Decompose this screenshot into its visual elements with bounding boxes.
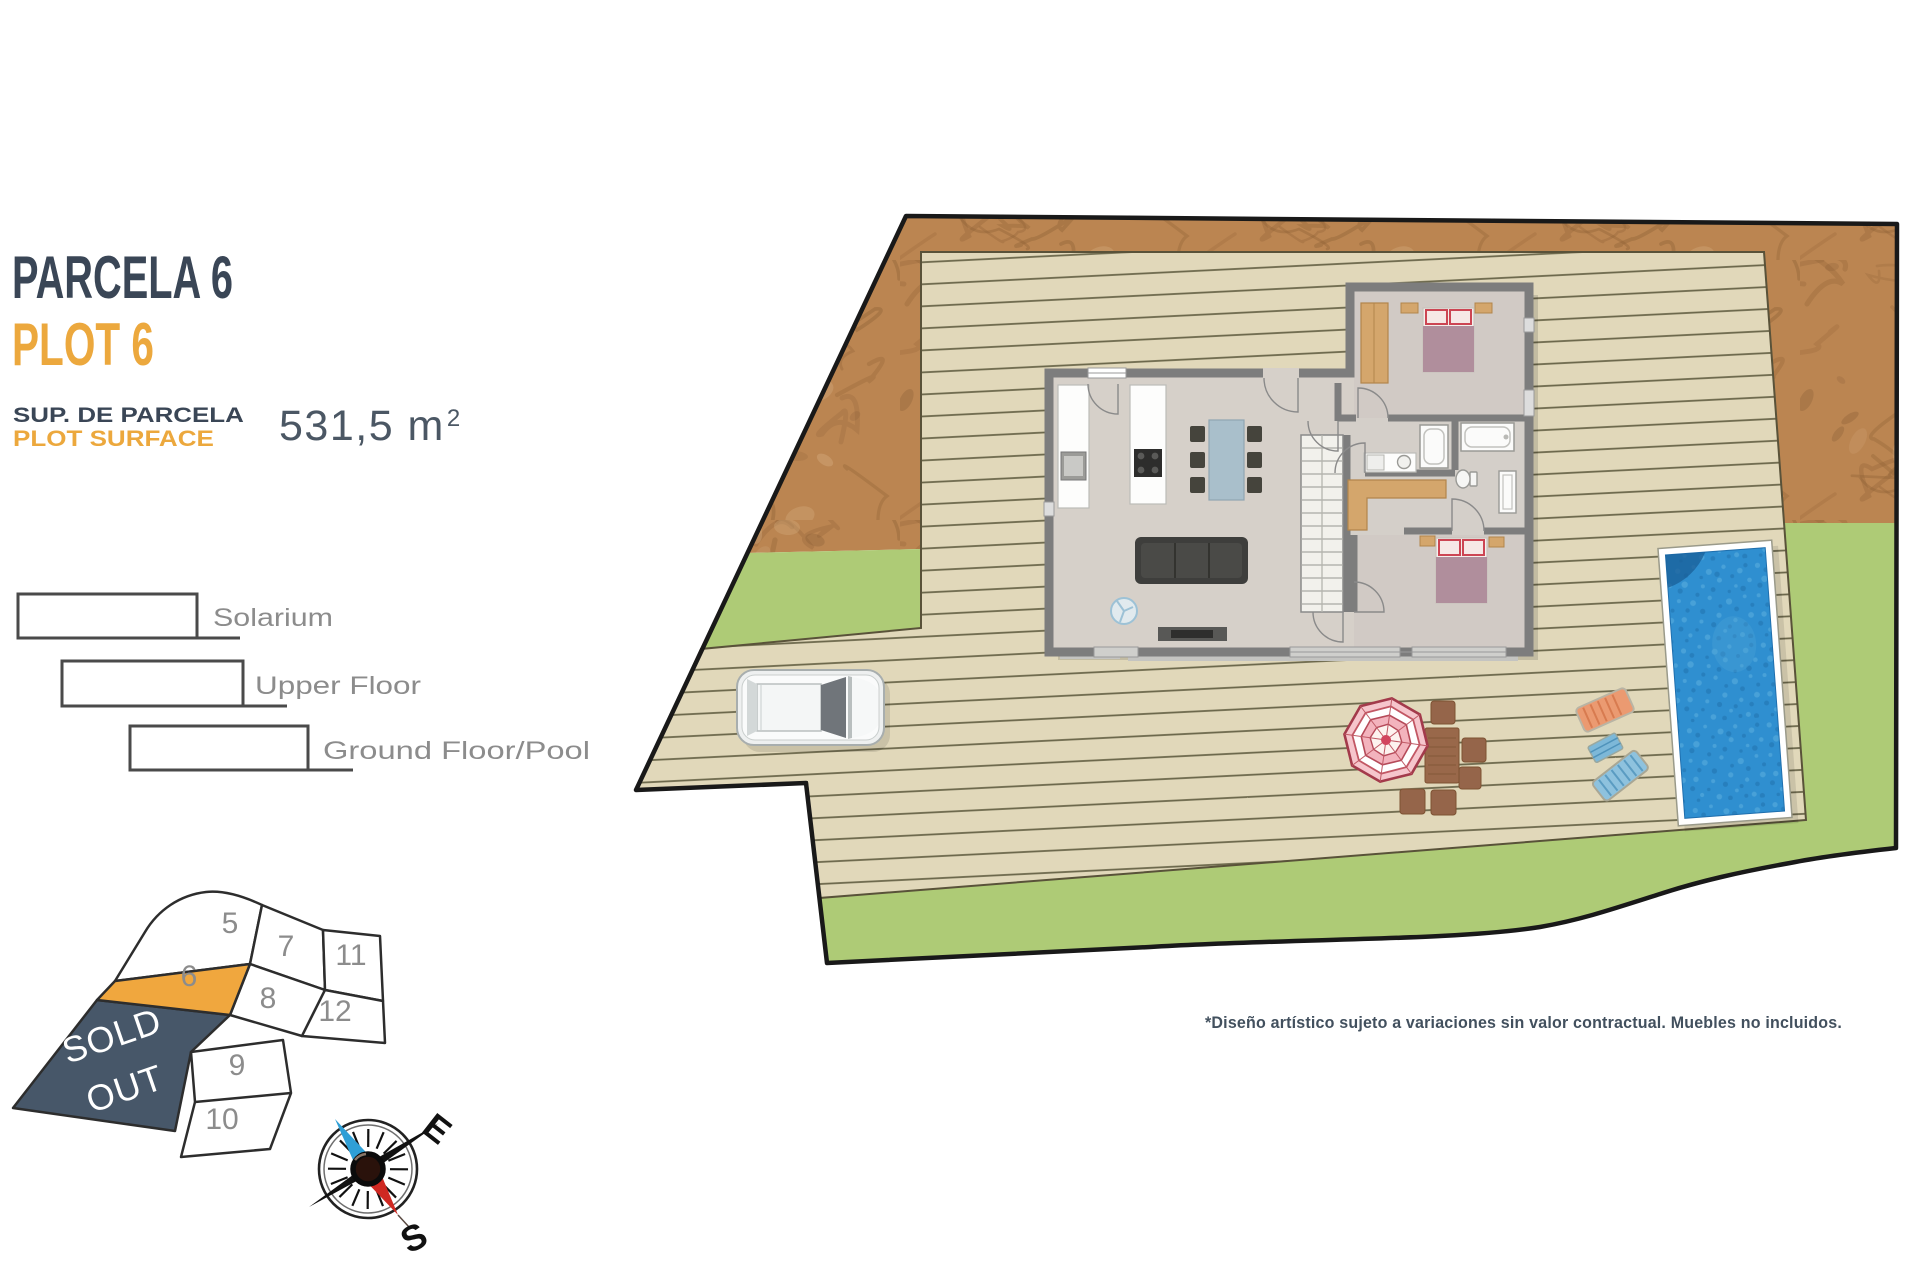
svg-text:531,5 m2: 531,5 m2	[279, 402, 462, 450]
svg-text:9: 9	[229, 1049, 246, 1082]
svg-text:Solarium: Solarium	[213, 604, 333, 632]
svg-text:Upper Floor: Upper Floor	[255, 672, 421, 700]
svg-text:S: S	[394, 1214, 434, 1261]
svg-text:11: 11	[335, 939, 366, 972]
svg-text:Ground Floor/Pool: Ground Floor/Pool	[323, 737, 590, 765]
svg-text:6: 6	[181, 960, 198, 993]
svg-text:10: 10	[205, 1103, 238, 1136]
svg-text:7: 7	[278, 930, 295, 963]
svg-text:8: 8	[260, 982, 277, 1015]
svg-text:PLOT SURFACE: PLOT SURFACE	[13, 427, 214, 452]
svg-text:12: 12	[318, 995, 351, 1028]
svg-text:*Diseño artístico sujeto a var: *Diseño artístico sujeto a variaciones s…	[1205, 1014, 1842, 1032]
svg-text:PARCELA 6: PARCELA 6	[12, 244, 233, 311]
svg-text:E: E	[415, 1105, 459, 1152]
svg-text:SUP. DE PARCELA: SUP. DE PARCELA	[13, 403, 244, 426]
svg-text:PLOT 6: PLOT 6	[12, 311, 154, 378]
svg-text:5: 5	[222, 907, 239, 940]
